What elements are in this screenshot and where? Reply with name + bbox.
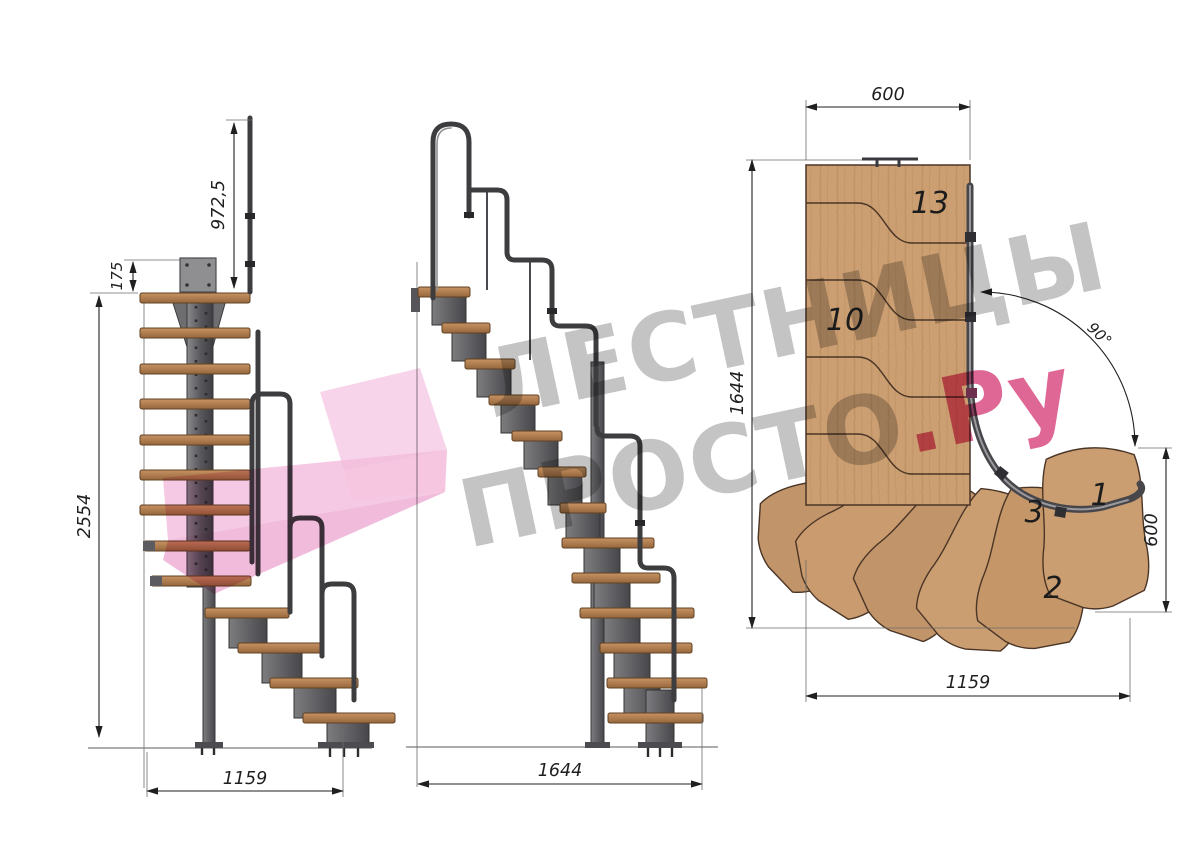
step-number-13: 13 xyxy=(911,186,949,221)
dim-plan-right-width: 600 xyxy=(1142,513,1162,546)
dim-side-run: 1159 xyxy=(223,769,268,789)
step-number-1: 1 xyxy=(1090,478,1109,513)
pole-base xyxy=(585,742,610,748)
step-number-3: 3 xyxy=(1024,495,1043,530)
dim-plan-bottom-width: 1159 xyxy=(946,673,991,693)
step-number-2: 2 xyxy=(1043,571,1062,606)
dim-turn-angle: 90° xyxy=(1084,319,1116,350)
dim-total-height: 2554 xyxy=(75,494,95,539)
wall-mounting-plate xyxy=(180,258,216,292)
support-pole xyxy=(203,580,215,743)
base-plate xyxy=(195,742,223,748)
technical-drawing-staircase: 2554 175 972,5 1159 xyxy=(0,0,1200,849)
lower-flight xyxy=(202,608,395,757)
dim-front-run: 1644 xyxy=(538,761,583,781)
rail-fitting xyxy=(1054,506,1067,518)
dim-plan-top-width: 600 xyxy=(871,85,904,105)
dim-plate-offset: 175 xyxy=(108,262,126,291)
drawing-canvas: 2554 175 972,5 1159 xyxy=(0,0,1200,849)
dim-rail-height: 972,5 xyxy=(209,180,229,230)
